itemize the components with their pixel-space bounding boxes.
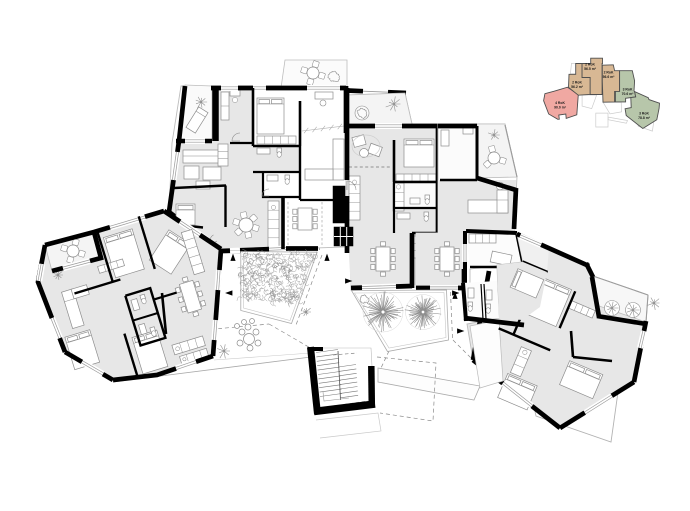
svg-text:56.6 m²: 56.6 m² <box>603 75 616 79</box>
svg-text:3 RoK: 3 RoK <box>639 112 649 116</box>
svg-text:56.5 m²: 56.5 m² <box>584 67 597 71</box>
svg-text:2 RoK: 2 RoK <box>572 81 582 85</box>
svg-text:2 RoK: 2 RoK <box>604 71 614 75</box>
svg-text:4 RoK: 4 RoK <box>555 101 565 105</box>
svg-text:56.2 m²: 56.2 m² <box>571 85 584 89</box>
svg-text:3 RoK: 3 RoK <box>623 88 633 92</box>
svg-text:70.6 m²: 70.6 m² <box>622 92 635 96</box>
svg-text:90.0 m²: 90.0 m² <box>554 106 567 110</box>
svg-text:2 RoK: 2 RoK <box>585 63 595 67</box>
svg-text:78.8 m²: 78.8 m² <box>638 116 651 120</box>
